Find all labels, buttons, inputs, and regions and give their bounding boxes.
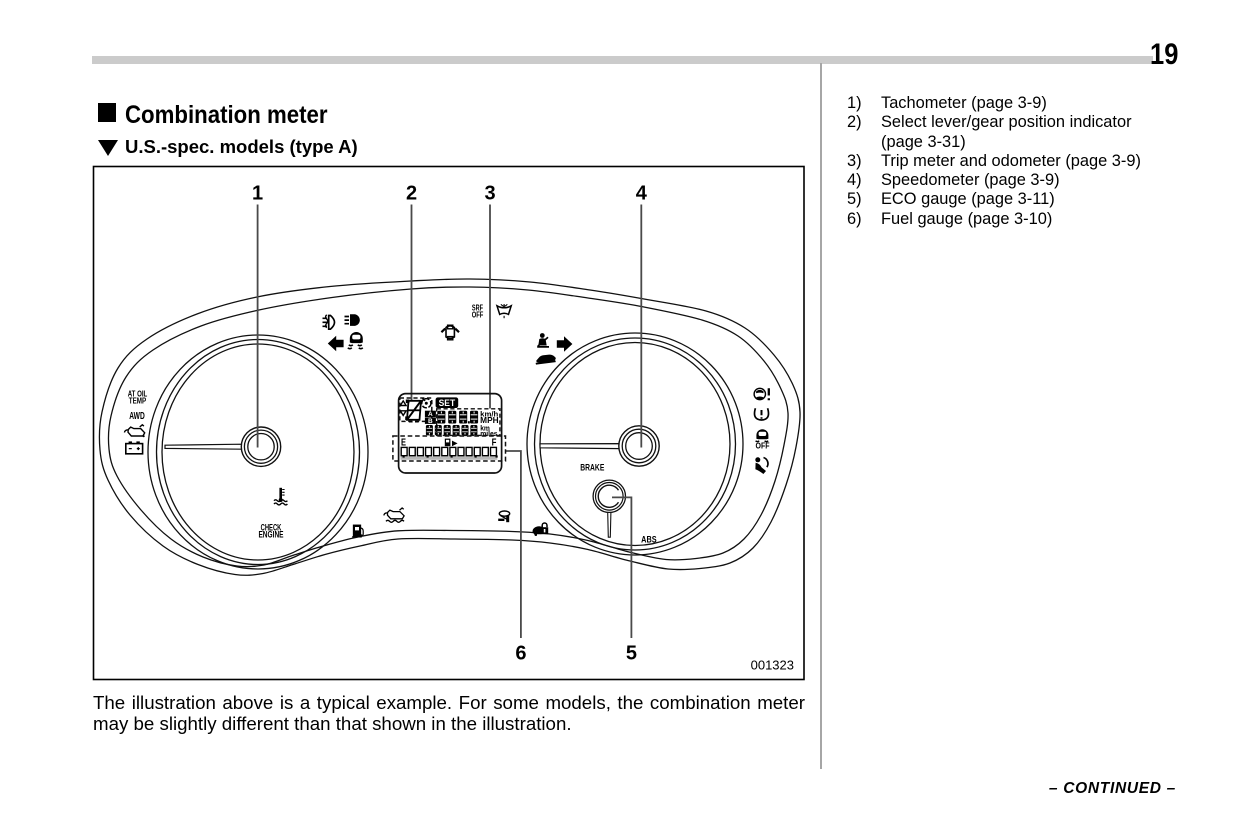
svg-text:4: 4 (636, 183, 648, 205)
svg-text:OFF: OFF (472, 310, 484, 320)
svg-text:2: 2 (406, 183, 417, 205)
svg-text:1: 1 (252, 183, 263, 205)
svg-text:ABS: ABS (641, 535, 657, 546)
svg-text:SET: SET (439, 398, 456, 408)
svg-text:001323: 001323 (751, 658, 794, 673)
svg-text:B: B (428, 418, 433, 425)
svg-text:ENGINE: ENGINE (258, 529, 283, 539)
svg-text:AWD: AWD (129, 411, 145, 422)
svg-text:TEMP: TEMP (129, 396, 147, 406)
svg-text:6: 6 (515, 642, 526, 664)
svg-text:3: 3 (484, 183, 495, 205)
svg-text:5: 5 (626, 642, 637, 664)
svg-text:BRAKE: BRAKE (580, 463, 605, 474)
